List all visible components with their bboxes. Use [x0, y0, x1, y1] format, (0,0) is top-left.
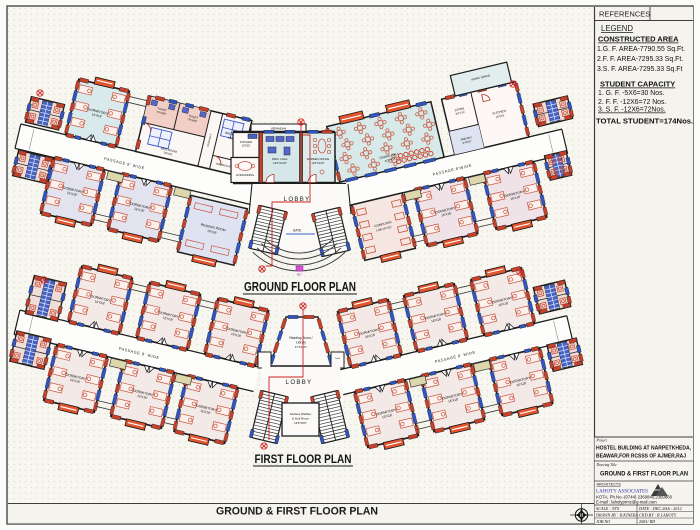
svg-text:DRAWN BY : R.KINERA: DRAWN BY : R.KINERA — [595, 513, 638, 518]
svg-text:DATE : DEC.20th : 2012: DATE : DEC.20th : 2012 — [638, 506, 682, 511]
svg-text:VERANDAH: VERANDAH — [271, 127, 287, 131]
svg-text:ENT.: ENT. — [297, 273, 303, 277]
svg-text:GROUND & FIRST FLOOR PLAN: GROUND & FIRST FLOOR PLAN — [216, 506, 378, 518]
svg-text:CONSTRUCTED AREA: CONSTRUCTED AREA — [598, 35, 679, 44]
svg-text:Toilet: Toilet — [335, 357, 340, 360]
svg-text:Reading Room /: Reading Room / — [289, 336, 312, 340]
svg-text:Library: Library — [296, 341, 306, 345]
svg-text:1.G. F. AREA-7790.55 Sq.Ft.: 1.G. F. AREA-7790.55 Sq.Ft. — [597, 46, 685, 53]
svg-text:Student Welfare: Student Welfare — [290, 412, 312, 416]
svg-text:TOTAL STUDENT=174Nos.: TOTAL STUDENT=174Nos. — [596, 117, 693, 126]
svg-text:2.F. F. AREA-7295.33 Sq.Ft.: 2.F. F. AREA-7295.33 Sq.Ft. — [597, 56, 683, 63]
svg-text:2. F. F. -12X6=72 Nos.: 2. F. F. -12X6=72 Nos. — [598, 99, 666, 106]
svg-text:SCALE : NTS: SCALE : NTS — [596, 506, 620, 511]
svg-text:12'0"X14'0": 12'0"X14'0" — [311, 161, 324, 165]
svg-text:BEAWAR,FOR RCSSS OF AJMER,RAJ: BEAWAR,FOR RCSSS OF AJMER,RAJ — [596, 454, 686, 460]
svg-text:1. G. F. -5X6=30 Nos.: 1. G. F. -5X6=30 Nos. — [598, 90, 665, 97]
svg-text:2081/ RD: 2081/ RD — [639, 519, 655, 524]
svg-text:GATE: GATE — [293, 229, 301, 233]
svg-text:STUDENT CAPACITY: STUDENT CAPACITY — [600, 80, 675, 89]
svg-text:CKD.BY : R.LAHOTY: CKD.BY : R.LAHOTY — [639, 513, 677, 518]
svg-text:FIRST FLOOR PLAN: FIRST FLOOR PLAN — [255, 452, 352, 466]
svg-text:17'X14'0": 17'X14'0" — [295, 345, 308, 349]
svg-text:ARCHITECTS: ARCHITECTS — [597, 483, 622, 487]
svg-text:REFERENCES: REFERENCES — [599, 10, 650, 19]
svg-text:KITCHEN: KITCHEN — [240, 140, 252, 144]
svg-text:LEGEND: LEGEND — [601, 24, 633, 33]
svg-text:LIVING/DINING: LIVING/DINING — [236, 173, 254, 177]
svg-text:12'0"X14'0": 12'0"X14'0" — [273, 161, 287, 165]
svg-text:LOBBY: LOBBY — [286, 379, 313, 386]
svg-text:E-mail : lahotyprmc@g-mail.com: E-mail : lahotyprmc@g-mail.com — [596, 500, 657, 505]
svg-text:3.S. F. AREA-7295.33 Sq.Ft: 3.S. F. AREA-7295.33 Sq.Ft — [597, 66, 682, 73]
svg-text:14'0"X9'6": 14'0"X9'6" — [294, 421, 307, 425]
svg-text:HOSTEL BUILDING AT NARPETKHEDA: HOSTEL BUILDING AT NARPETKHEDA, — [596, 446, 691, 452]
svg-text:JOB NO: JOB NO — [596, 519, 610, 524]
svg-text:GROUND FLOOR PLAN: GROUND FLOOR PLAN — [244, 279, 356, 294]
svg-text:GROUND & FIRST FLOOR PLAN: GROUND & FIRST FLOOR PLAN — [600, 471, 688, 478]
svg-text:10'X10': 10'X10' — [242, 144, 251, 148]
svg-text:Drawing Title: Drawing Title — [596, 463, 617, 467]
svg-text:3. S. F. -12X6=72Nos.: 3. S. F. -12X6=72Nos. — [598, 107, 666, 114]
svg-text:& Sick Room: & Sick Room — [292, 417, 310, 421]
svg-text:Project: Project — [596, 439, 608, 443]
svg-text:DRG. HALL: DRG. HALL — [272, 157, 288, 161]
